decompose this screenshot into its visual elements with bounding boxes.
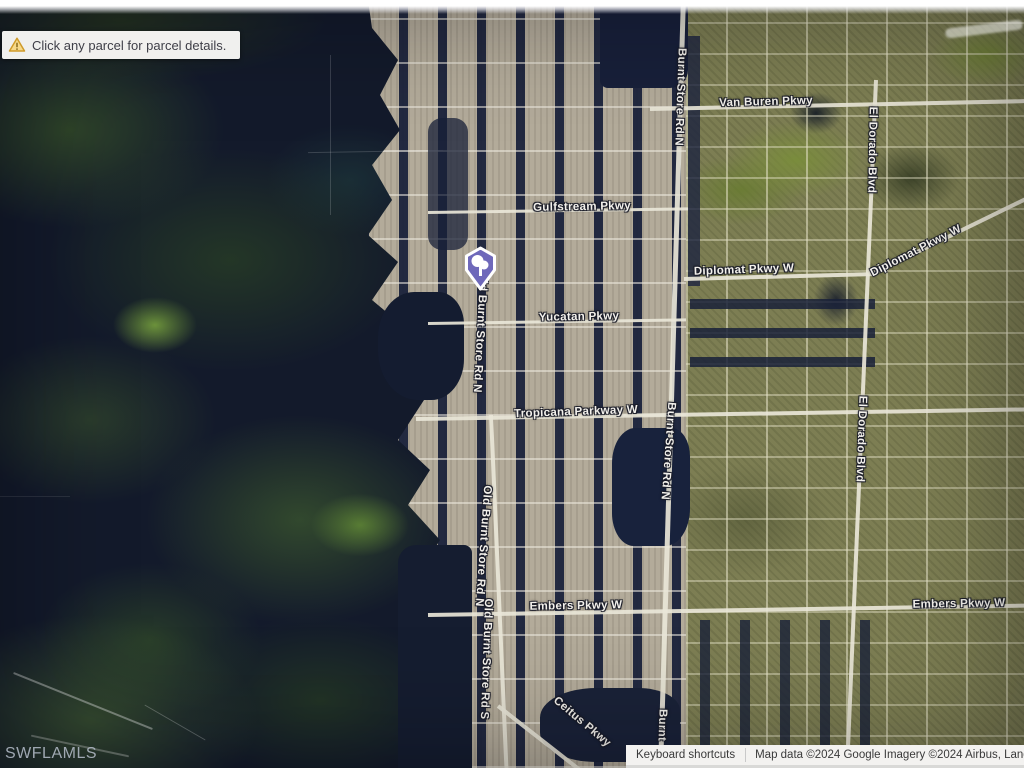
canal-patch [398,545,472,768]
survey-gridline [0,496,70,497]
lake-patch [612,428,690,546]
canal-patch [688,36,700,286]
road-label-embers-pkwy-w: Embers Pkwy W [530,599,623,613]
parcel-location-marker[interactable] [464,246,497,291]
lagoon-patch [378,292,464,400]
warning-triangle-icon [8,36,26,54]
road-label-burnt-clipped: Burnt [655,709,668,742]
road-label-van-buren-pkwy: Van Buren Pkwy [719,95,813,109]
road-label-gulfstream-pkwy: Gulfstream Pkwy [533,200,631,214]
glare-artifact [0,0,1024,14]
keyboard-shortcuts-button[interactable]: Keyboard shortcuts [626,749,745,761]
survey-gridline [330,55,331,215]
map-attribution: Map data ©2024 Google Imagery ©2024 Airb… [746,749,1024,761]
mls-watermark: SWFLAMLS [5,745,97,763]
map-statusbar: Keyboard shortcuts Map data ©2024 Google… [626,745,1024,765]
canal-patch [428,118,468,250]
tree-marker-icon [464,246,497,291]
parcel-hint-banner: Click any parcel for parcel details. [2,31,240,59]
road-label-yucatan-pkwy: Yucatan Pkwy [539,310,620,323]
banner-text: Click any parcel for parcel details. [32,38,226,53]
map-viewport[interactable]: Van Buren Pkwy Burnt Store Rd N Gulfstre… [0,0,1024,768]
road-label-el-dorado-blvd: El Dorado Blvd [865,107,879,194]
road-label-embers-pkwy-w-east: Embers Pkwy W [913,597,1006,611]
canal-rows-patch [690,282,875,367]
